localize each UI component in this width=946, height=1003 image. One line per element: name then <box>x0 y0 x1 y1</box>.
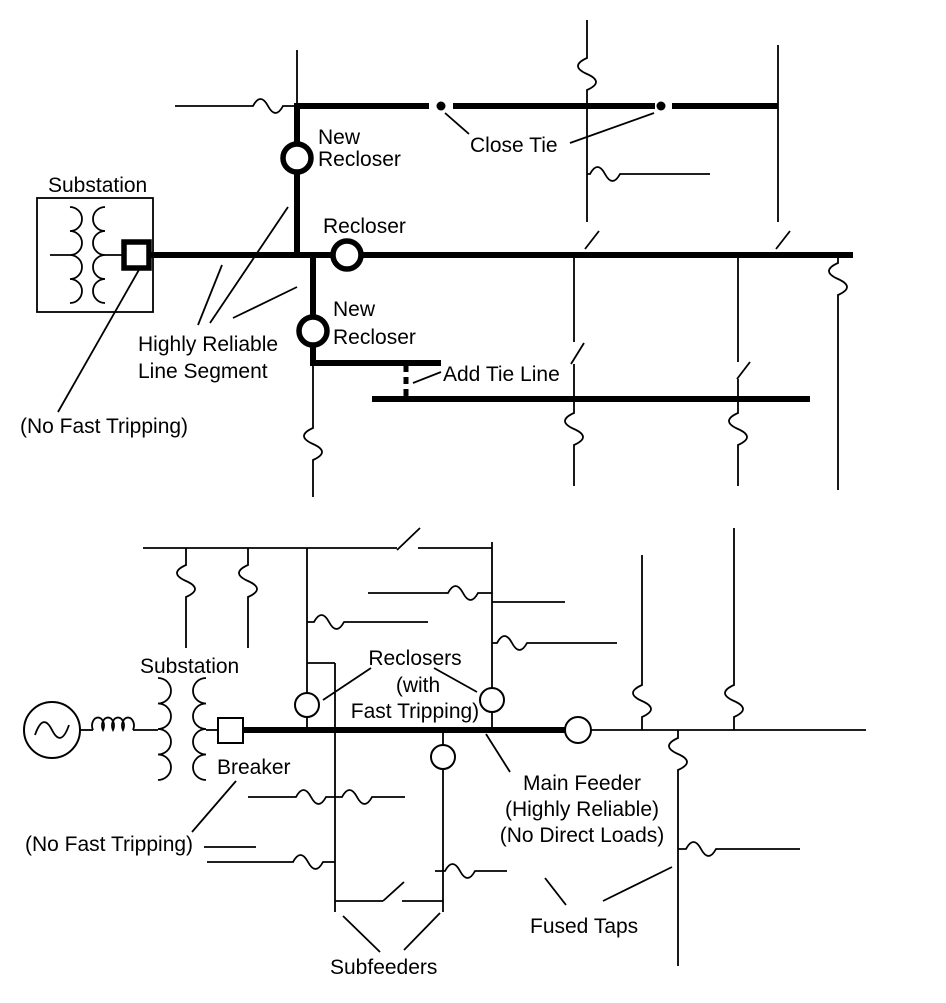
new-recloser-upper-label: Recloser <box>318 148 401 171</box>
switch-slash-icon <box>397 528 420 550</box>
open-tie-dot-icon <box>437 102 446 111</box>
main-feeder-label: Main Feeder <box>523 772 641 795</box>
fused-tap-line <box>248 790 405 804</box>
figure-page: Substation New Recloser Recloser Close T… <box>0 0 946 1003</box>
lateral-line <box>175 99 297 113</box>
lateral-line <box>633 555 651 730</box>
transformer-winding-icon <box>193 678 206 780</box>
switch-slash-icon <box>776 231 790 249</box>
leader-line <box>323 668 371 700</box>
new-recloser-lower-label: Recloser <box>333 326 416 349</box>
leader-line <box>233 287 297 318</box>
leader-line <box>434 668 477 692</box>
transformer-winding-icon <box>93 207 124 303</box>
close-tie-label: Close Tie <box>470 134 558 157</box>
leader-line <box>486 734 510 772</box>
reclosers-figure: Substation New Recloser Recloser Close T… <box>0 0 946 1003</box>
reclosers-label: (with <box>396 674 440 697</box>
main-feeder-label: (No Direct Loads) <box>500 824 665 847</box>
recloser-fast-trip-icon <box>480 688 504 712</box>
leader-line <box>192 781 236 832</box>
leader-line <box>413 372 441 383</box>
bottom-diagram: Substation Breaker Reclosers (with Fast … <box>24 528 866 979</box>
lateral-line <box>829 255 847 490</box>
lateral-line <box>307 615 428 629</box>
leader-line <box>343 916 380 952</box>
fused-taps-label: Fused Taps <box>530 915 638 938</box>
switch-slash-icon <box>737 362 750 379</box>
breaker-square-icon <box>124 242 149 268</box>
breaker-label: Breaker <box>217 756 291 779</box>
lateral-line <box>368 586 492 600</box>
transformer-winding-icon <box>158 678 171 780</box>
reclosers-label: Reclosers <box>368 647 461 670</box>
open-tie-dot-icon <box>657 102 666 111</box>
fused-tap-line <box>435 864 507 878</box>
switch-slash-icon <box>383 882 404 901</box>
no-fast-tripping-label: (No Fast Tripping) <box>25 833 193 856</box>
recloser-fast-trip-icon <box>295 693 319 717</box>
new-recloser-upper-icon <box>283 144 311 172</box>
no-fast-tripping-label: (No Fast Tripping) <box>20 415 188 438</box>
lateral-line <box>587 167 710 181</box>
reclosers-label: Fast Tripping) <box>351 700 479 723</box>
leader-line <box>445 113 469 134</box>
lateral-line <box>304 363 322 497</box>
switch-slash-icon <box>571 343 584 364</box>
main-feeder-label: (Highly Reliable) <box>505 798 659 821</box>
lateral-line <box>239 548 257 648</box>
recloser-subfeeder-icon <box>431 745 455 769</box>
add-tie-line-label: Add Tie Line <box>443 363 560 386</box>
leader-line <box>404 913 440 950</box>
recloser-label: Recloser <box>323 215 406 238</box>
breaker-square-icon <box>218 718 243 743</box>
highly-reliable-label: Line Segment <box>138 360 268 383</box>
new-recloser-lower-icon <box>299 317 327 345</box>
switch-slash-icon <box>585 231 599 249</box>
top-diagram: Substation New Recloser Recloser Close T… <box>20 20 853 497</box>
fused-tap-line <box>678 842 800 856</box>
lateral-line <box>725 528 743 730</box>
lateral-line <box>578 20 596 222</box>
lateral-line <box>565 364 583 486</box>
fused-tap-line <box>207 855 335 869</box>
leader-line <box>570 113 654 143</box>
subfeeders-label: Subfeeders <box>330 956 437 979</box>
inductor-coil-icon <box>92 718 134 730</box>
recloser-icon <box>333 241 361 269</box>
lateral-line <box>492 636 617 650</box>
transformer-winding-icon <box>50 207 82 303</box>
leader-line <box>545 878 566 905</box>
lateral-line <box>729 379 747 486</box>
lateral-line <box>669 730 687 966</box>
substation-label: Substation <box>48 174 147 197</box>
leader-line <box>58 268 140 412</box>
substation-label: Substation <box>140 655 239 678</box>
new-recloser-lower-label: New <box>333 298 376 321</box>
leader-line <box>198 265 222 325</box>
recloser-feeder-end-icon <box>565 717 591 743</box>
highly-reliable-label: Highly Reliable <box>138 333 278 356</box>
leader-line <box>603 867 672 901</box>
lateral-line <box>177 548 195 648</box>
new-recloser-upper-label: New <box>318 126 361 149</box>
